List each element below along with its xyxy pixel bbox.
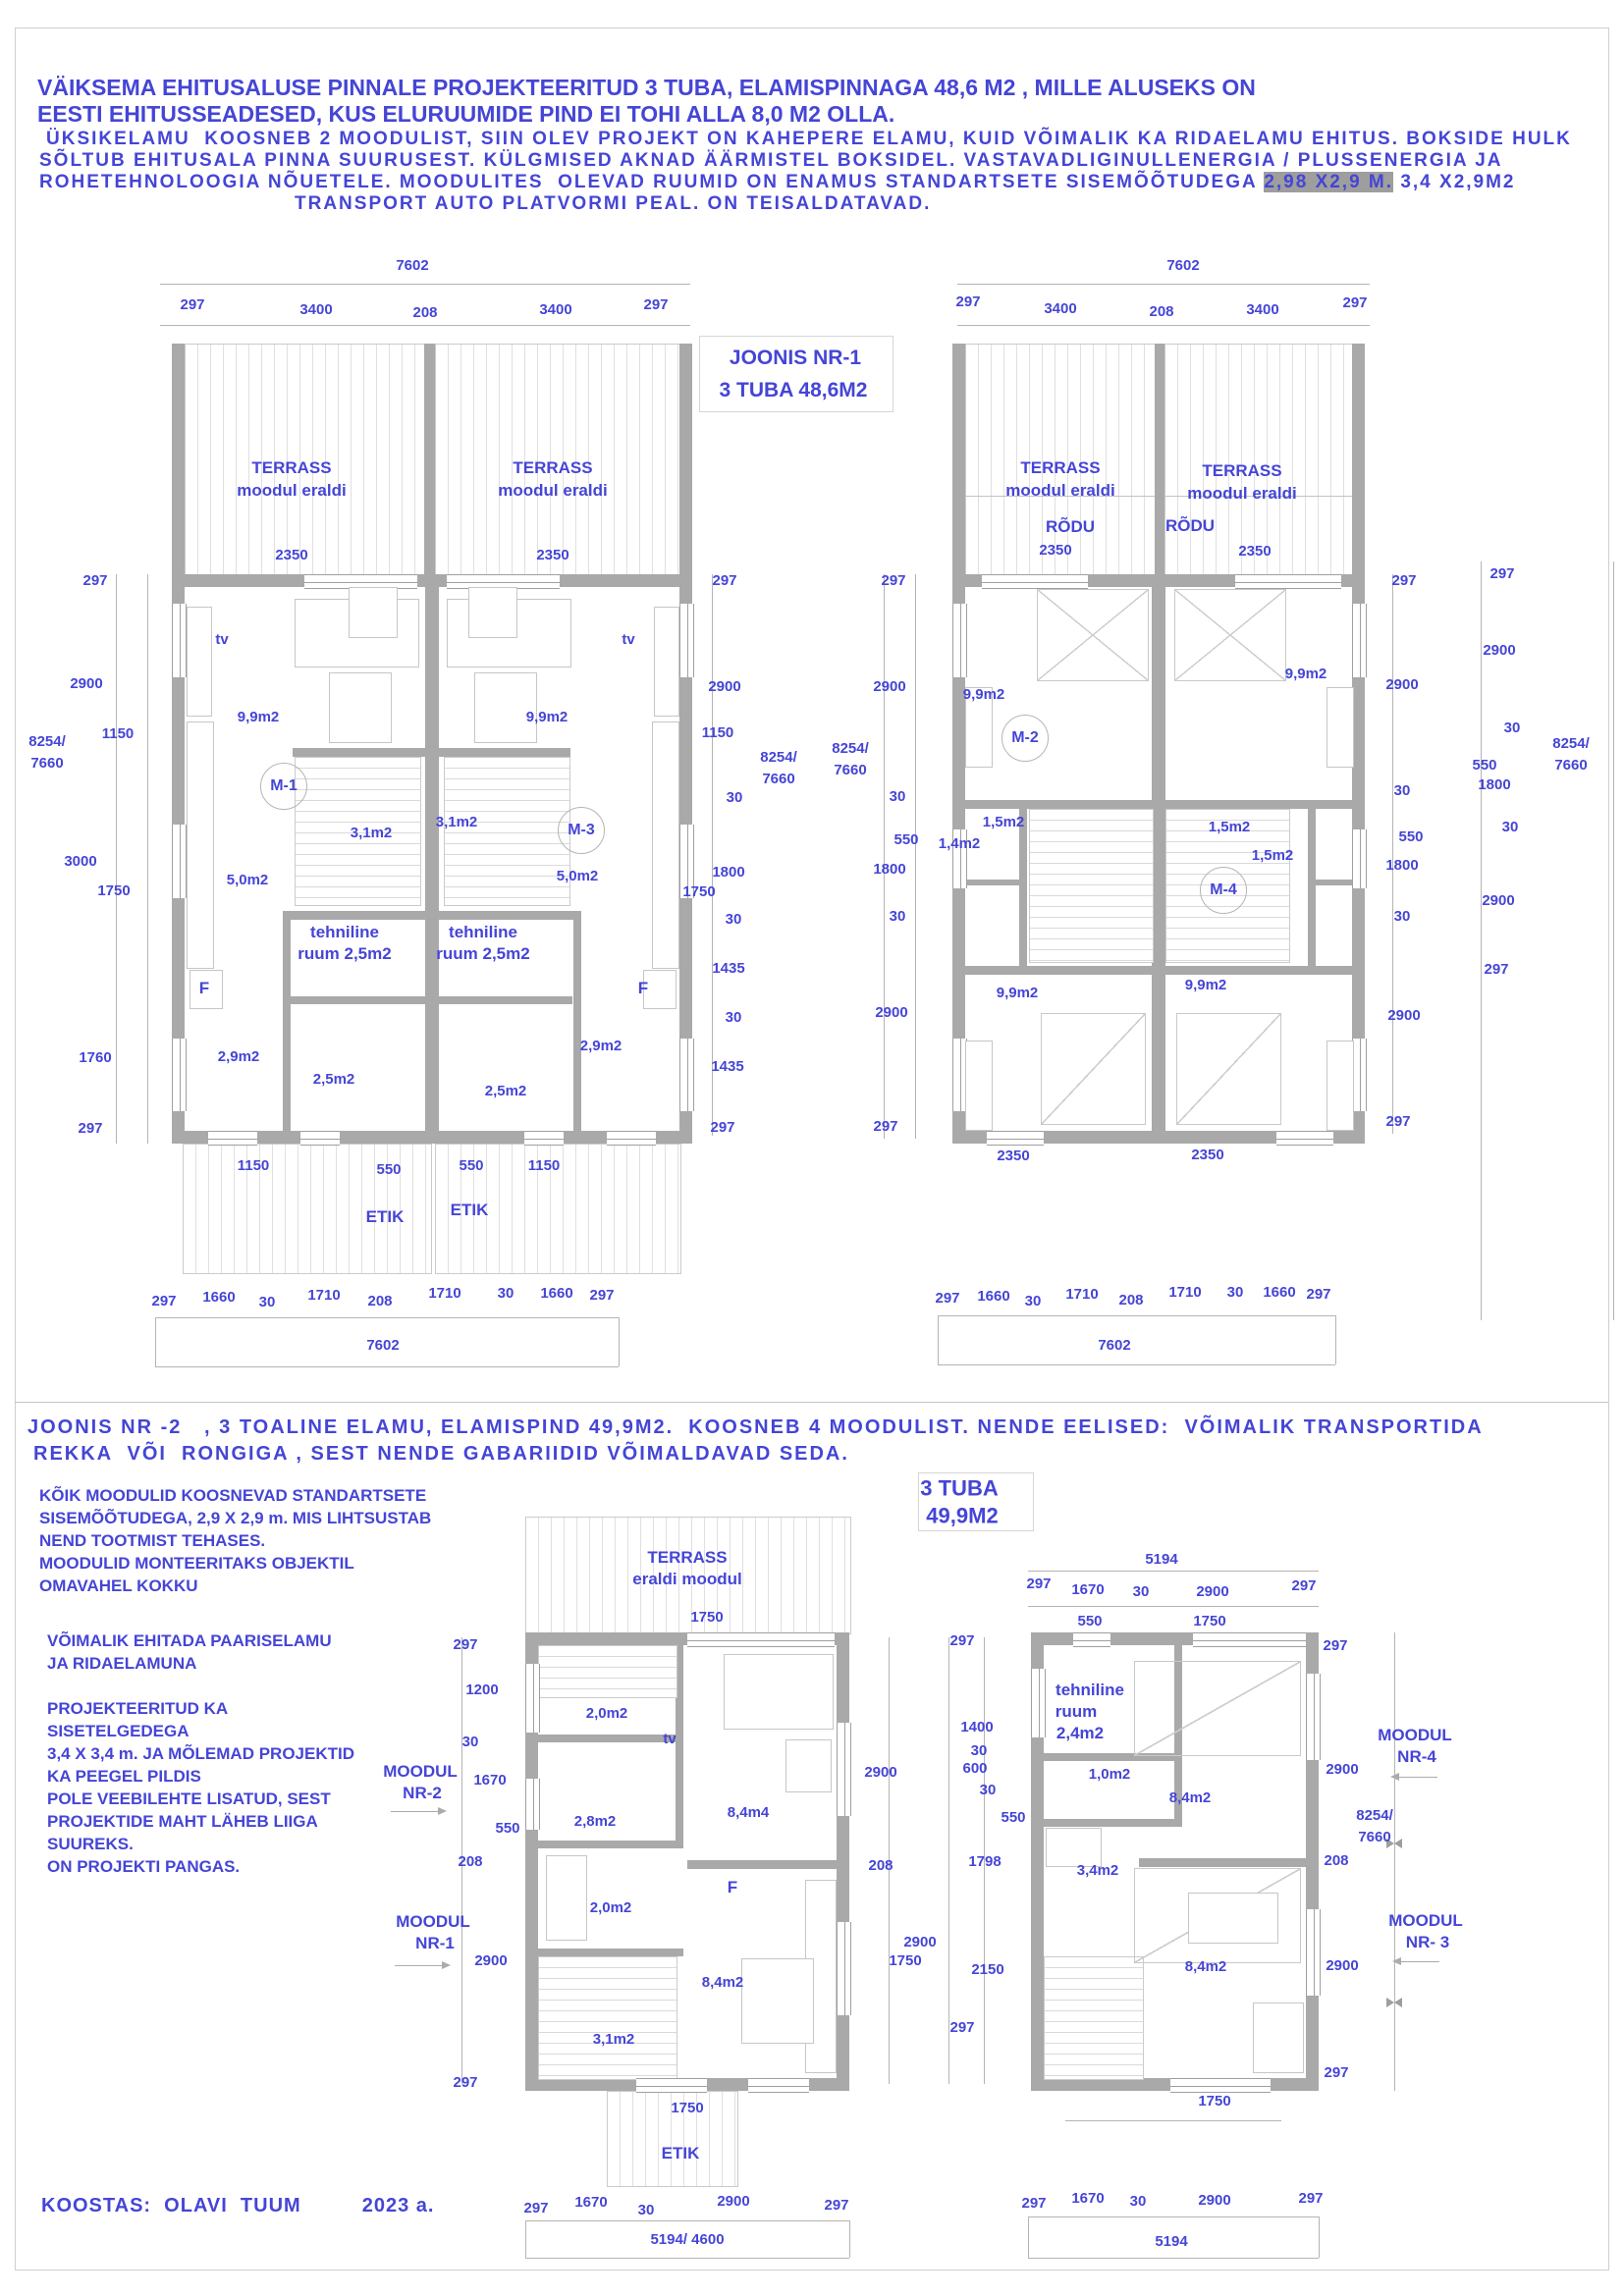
plan4-label: 8,4m2 xyxy=(1169,1790,1212,1806)
plan1-label: ruum 2,5m2 xyxy=(298,945,391,963)
module-label: MOODUL xyxy=(1388,1912,1463,1930)
plan2-label: 8254/ xyxy=(832,741,869,757)
plan1-label: 1660 xyxy=(540,1286,572,1302)
plan4-label: 3,4m2 xyxy=(1077,1863,1119,1879)
plan1-label: 1750 xyxy=(97,883,130,899)
plan2-label: 9,9m2 xyxy=(1185,978,1227,993)
plan1-label: M-3 xyxy=(558,807,605,854)
plan4-label: 1750 xyxy=(1198,2094,1230,2109)
plan2-label: 7660 xyxy=(1554,758,1587,774)
plan2-label: 1,5m2 xyxy=(983,815,1025,830)
plan3-label: 1750 xyxy=(690,1610,723,1626)
plan1-label: tv xyxy=(215,632,228,648)
plan4-label: 2150 xyxy=(971,1962,1003,1978)
plan2-label: 1800 xyxy=(1478,777,1510,793)
plan4-label: 2900 xyxy=(1326,1958,1358,1974)
plan2-label: moodul eraldi xyxy=(1187,485,1296,503)
plan2-label: 1,5m2 xyxy=(1209,820,1251,835)
plan2-label: 1800 xyxy=(1385,858,1418,874)
plan2-label: 2350 xyxy=(1039,543,1071,559)
plan2-label: 30 xyxy=(1504,721,1521,736)
plan4-label: 1670 xyxy=(1071,2191,1104,2207)
plan1-label: 297 xyxy=(712,573,736,589)
plan1-label: tv xyxy=(622,632,634,648)
plan2-label: 9,9m2 xyxy=(997,986,1039,1001)
plan2-label: 2900 xyxy=(1385,677,1418,693)
plan3-label: eraldi moodul xyxy=(632,1571,741,1588)
plan4-label: 8,4m2 xyxy=(1185,1959,1227,1975)
plan4-label: 30 xyxy=(971,1743,988,1759)
plan1-label: 3000 xyxy=(64,854,96,870)
plan3-label: TERRASS xyxy=(647,1549,727,1567)
plan2-label: 8254/ xyxy=(1552,736,1590,752)
plan2-label: 208 xyxy=(1118,1293,1143,1308)
plan1-label: tehniline xyxy=(449,924,517,941)
plan4-label: 30 xyxy=(1133,1584,1150,1600)
module-label: MOODUL xyxy=(1378,1727,1452,1744)
plan3-label: 30 xyxy=(638,2203,655,2218)
plan1-label: 208 xyxy=(367,1294,392,1309)
plan2-label: 3400 xyxy=(1246,302,1278,318)
plan4-label: 2900 xyxy=(1198,2193,1230,2209)
plan3-label: 8,4m2 xyxy=(702,1975,744,1991)
plan2-label: 2350 xyxy=(997,1148,1029,1164)
plan1-label: 7660 xyxy=(762,772,794,787)
plan2-label: 297 xyxy=(935,1291,959,1307)
plan1-label: 208 xyxy=(412,305,437,321)
plan1-label: 1800 xyxy=(712,865,744,881)
plan2-label: 297 xyxy=(1484,962,1508,978)
plan4-label: 208 xyxy=(1324,1853,1348,1869)
plan1-label: 2350 xyxy=(536,548,568,563)
plan3-label: 1750 xyxy=(671,2101,703,2116)
plan3-label: 30 xyxy=(462,1735,479,1750)
plan1-label: 2900 xyxy=(708,679,740,695)
joonis-nr2-area: 49,9M2 xyxy=(926,1504,998,1526)
plan4-label: 2900 xyxy=(1196,1584,1228,1600)
plan1-label: TERRASS xyxy=(251,459,331,477)
module-label: MOODUL xyxy=(383,1763,458,1781)
module-label: NR-2 xyxy=(403,1785,442,1802)
plan2-label: M-2 xyxy=(1001,715,1049,762)
plan3-label: 5194/ 4600 xyxy=(650,2232,724,2248)
plan2-label: 1660 xyxy=(1263,1285,1295,1301)
plan4-label: 1798 xyxy=(968,1854,1001,1870)
plan3-label: tv xyxy=(663,1732,676,1747)
module-label: NR- 3 xyxy=(1406,1934,1449,1951)
plan2-label: 1,4m2 xyxy=(939,836,981,852)
plan1-label: 297 xyxy=(643,297,668,313)
plan2-label: 30 xyxy=(1502,820,1519,835)
plan2-label: 208 xyxy=(1149,304,1173,320)
plan3-label: 2900 xyxy=(474,1953,507,1969)
plan2-label: RÕDU xyxy=(1046,518,1095,536)
plan4-label: 1750 xyxy=(1193,1614,1225,1629)
plan2-label: 2350 xyxy=(1238,544,1271,560)
plan1-label: 297 xyxy=(82,573,107,589)
plan4-label: 1670 xyxy=(1071,1582,1104,1598)
plan4-label: 297 xyxy=(1323,1638,1347,1654)
plan2-label: 7660 xyxy=(834,763,866,778)
plan2-label: M-4 xyxy=(1200,867,1247,914)
plan4-label: 1,0m2 xyxy=(1089,1767,1131,1783)
plan4-label: tehniline xyxy=(1056,1682,1124,1699)
plan1-label: 5,0m2 xyxy=(227,873,269,888)
plan1-label: 30 xyxy=(726,1010,742,1026)
plan1-label: tehniline xyxy=(310,924,379,941)
plan2-label: 9,9m2 xyxy=(963,687,1005,703)
plan4-label: 30 xyxy=(1130,2194,1147,2210)
plan2-label: 297 xyxy=(1385,1114,1410,1130)
plan1-label: 2,5m2 xyxy=(485,1084,527,1099)
plan1-label: moodul eraldi xyxy=(237,482,346,500)
module-label: NR-4 xyxy=(1397,1748,1436,1766)
plan1-label: 5,0m2 xyxy=(557,869,599,884)
plan1-label: 297 xyxy=(78,1121,102,1137)
plan4-label: 297 xyxy=(949,2020,974,2036)
plan1-label: F xyxy=(199,980,209,997)
plan3-label: 8,4m4 xyxy=(728,1805,770,1821)
plan2-label: 30 xyxy=(890,909,906,925)
plan1-label: 7660 xyxy=(30,756,63,772)
module-label: MOODUL xyxy=(396,1913,470,1931)
plan2-label: 3400 xyxy=(1044,301,1076,317)
plan1-label: ETIK xyxy=(451,1201,489,1219)
plan3-label: 3,1m2 xyxy=(593,2032,635,2048)
plan1-label: ETIK xyxy=(366,1208,405,1226)
plan1-label: F xyxy=(638,980,648,997)
plan1-label: 3,1m2 xyxy=(351,826,393,841)
plan1-label: 1710 xyxy=(307,1288,340,1304)
module-label: NR-1 xyxy=(415,1935,455,1952)
plan4-label: 297 xyxy=(1021,2196,1046,2212)
plan3-label: 2,8m2 xyxy=(574,1814,617,1830)
plan1-label: 550 xyxy=(459,1158,483,1174)
plan1-label: 297 xyxy=(180,297,204,313)
plan3-label: 1670 xyxy=(473,1773,506,1789)
plan3-label: 2,0m2 xyxy=(590,1900,632,1916)
plan2-label: 297 xyxy=(1306,1287,1330,1303)
annotation-layer: JOONIS NR-13 TUBA 48,6M23 TUBA49,9M2MOOD… xyxy=(0,0,1624,2296)
plan4-label: 550 xyxy=(1077,1614,1102,1629)
plan2-label: 1,5m2 xyxy=(1252,848,1294,864)
plan2-label: 297 xyxy=(955,294,980,310)
plan1-label: 297 xyxy=(151,1294,176,1309)
plan3-label: 1750 xyxy=(889,1953,921,1969)
plan1-label: 2,9m2 xyxy=(218,1049,260,1065)
plan1-label: 1150 xyxy=(702,725,734,741)
plan4-label: 297 xyxy=(1291,1578,1316,1594)
plan2-label: 2900 xyxy=(875,1005,907,1021)
plan1-label: 8254/ xyxy=(760,750,797,766)
plan1-label: 2,5m2 xyxy=(313,1072,355,1088)
plan1-label: 1150 xyxy=(238,1158,270,1174)
plan2-label: 30 xyxy=(1025,1294,1042,1309)
plan2-label: 30 xyxy=(890,789,906,805)
plan1-label: 3,1m2 xyxy=(436,815,478,830)
plan1-label: moodul eraldi xyxy=(498,482,607,500)
plan2-label: 7602 xyxy=(1166,258,1199,274)
plan3-label: 297 xyxy=(453,2075,477,2091)
plan1-label: 2350 xyxy=(275,548,307,563)
plan2-label: moodul eraldi xyxy=(1005,482,1114,500)
plan1-label: 9,9m2 xyxy=(238,710,280,725)
plan2-label: 550 xyxy=(1398,829,1423,845)
plan4-label: 8254/ xyxy=(1356,1808,1393,1824)
plan4-label: 297 xyxy=(1324,2065,1348,2081)
plan2-label: 550 xyxy=(893,832,918,848)
plan2-label: RÕDU xyxy=(1165,517,1215,535)
plan2-label: TERRASS xyxy=(1202,462,1281,480)
architectural-drawing-sheet: VÄIKSEMA EHITUSALUSE PINNALE PROJEKTEERI… xyxy=(0,0,1624,2296)
plan4-label: 2900 xyxy=(1326,1762,1358,1778)
plan2-label: 7602 xyxy=(1098,1338,1130,1354)
joonis-nr1-title: JOONIS NR-1 xyxy=(730,347,861,369)
plan3-label: 1200 xyxy=(465,1682,498,1698)
plan2-label: 1710 xyxy=(1168,1285,1201,1301)
plan3-label: 2900 xyxy=(903,1935,936,1950)
plan3-label: 297 xyxy=(523,2201,548,2216)
plan1-label: 3400 xyxy=(539,302,571,318)
plan2-label: 2350 xyxy=(1191,1148,1223,1163)
plan4-label: 600 xyxy=(962,1761,987,1777)
plan3-label: 297 xyxy=(453,1637,477,1653)
plan2-label: 9,9m2 xyxy=(1285,667,1327,682)
plan2-label: 297 xyxy=(1489,566,1514,582)
plan4-label: 1400 xyxy=(960,1720,993,1735)
plan2-label: 297 xyxy=(873,1119,897,1135)
plan1-label: 30 xyxy=(498,1286,514,1302)
plan2-label: 1660 xyxy=(977,1289,1009,1305)
plan3-label: F xyxy=(728,1879,737,1896)
plan2-label: 2900 xyxy=(1387,1008,1420,1024)
plan3-label: 297 xyxy=(824,2198,848,2214)
plan3-label: 208 xyxy=(868,1858,893,1874)
plan1-label: 297 xyxy=(589,1288,614,1304)
plan1-label: 1435 xyxy=(711,1059,743,1075)
plan2-label: 30 xyxy=(1394,909,1411,925)
plan4-label: 297 xyxy=(1026,1576,1051,1592)
plan1-label: 1660 xyxy=(202,1290,235,1306)
plan2-label: 1710 xyxy=(1065,1287,1098,1303)
plan1-label: 297 xyxy=(710,1120,734,1136)
plan1-label: 7602 xyxy=(366,1338,399,1354)
plan1-label: 9,9m2 xyxy=(526,710,568,725)
plan2-label: 30 xyxy=(1227,1285,1244,1301)
plan3-label: ETIK xyxy=(662,2145,700,2163)
plan1-label: 30 xyxy=(259,1295,276,1310)
plan1-label: 1760 xyxy=(79,1050,111,1066)
plan4-label: 5194 xyxy=(1145,1552,1177,1568)
plan3-label: 2,0m2 xyxy=(586,1706,628,1722)
plan2-label: 297 xyxy=(881,573,905,589)
plan4-label: 7660 xyxy=(1358,1830,1390,1845)
plan2-label: 550 xyxy=(1472,758,1496,774)
plan2-label: 2900 xyxy=(1482,893,1514,909)
plan4-label: 30 xyxy=(980,1783,997,1798)
plan1-label: 2,9m2 xyxy=(580,1039,623,1054)
plan2-label: 297 xyxy=(1391,573,1416,589)
plan1-label: M-1 xyxy=(260,763,307,810)
plan2-label: 2900 xyxy=(1483,643,1515,659)
plan4-label: 550 xyxy=(1001,1810,1025,1826)
plan1-label: 550 xyxy=(376,1162,401,1178)
plan3-label: 208 xyxy=(458,1854,482,1870)
plan1-label: 8254/ xyxy=(28,734,66,750)
plan4-label: 5194 xyxy=(1155,2234,1187,2250)
plan1-label: 1710 xyxy=(428,1286,460,1302)
plan2-label: 297 xyxy=(1342,295,1367,311)
joonis-nr1-area: 3 TUBA 48,6M2 xyxy=(720,380,868,401)
plan1-label: 1150 xyxy=(102,726,135,742)
plan1-label: 1435 xyxy=(712,961,744,977)
plan4-label: 2,4m2 xyxy=(1056,1725,1104,1742)
plan1-label: TERRASS xyxy=(513,459,592,477)
plan4-label: 297 xyxy=(1298,2191,1323,2207)
plan3-label: 550 xyxy=(495,1821,519,1837)
plan1-label: 30 xyxy=(727,790,743,806)
plan2-label: 1800 xyxy=(873,862,905,878)
plan4-label: ruum xyxy=(1056,1703,1098,1721)
plan3-label: 2900 xyxy=(864,1765,896,1781)
plan1-label: 2900 xyxy=(70,676,102,692)
plan2-label: 30 xyxy=(1394,783,1411,799)
plan4-label: 297 xyxy=(949,1633,974,1649)
plan2-label: 2900 xyxy=(873,679,905,695)
joonis-nr2-rooms: 3 TUBA xyxy=(920,1476,998,1499)
plan3-label: 1670 xyxy=(574,2195,607,2211)
plan1-label: 1150 xyxy=(528,1158,561,1174)
plan1-label: 30 xyxy=(726,912,742,928)
plan1-label: ruum 2,5m2 xyxy=(436,945,529,963)
plan1-label: 7602 xyxy=(396,258,428,274)
plan2-label: TERRASS xyxy=(1020,459,1100,477)
plan1-label: 1750 xyxy=(682,884,715,900)
plan1-label: 3400 xyxy=(299,302,332,318)
plan3-label: 2900 xyxy=(717,2194,749,2210)
